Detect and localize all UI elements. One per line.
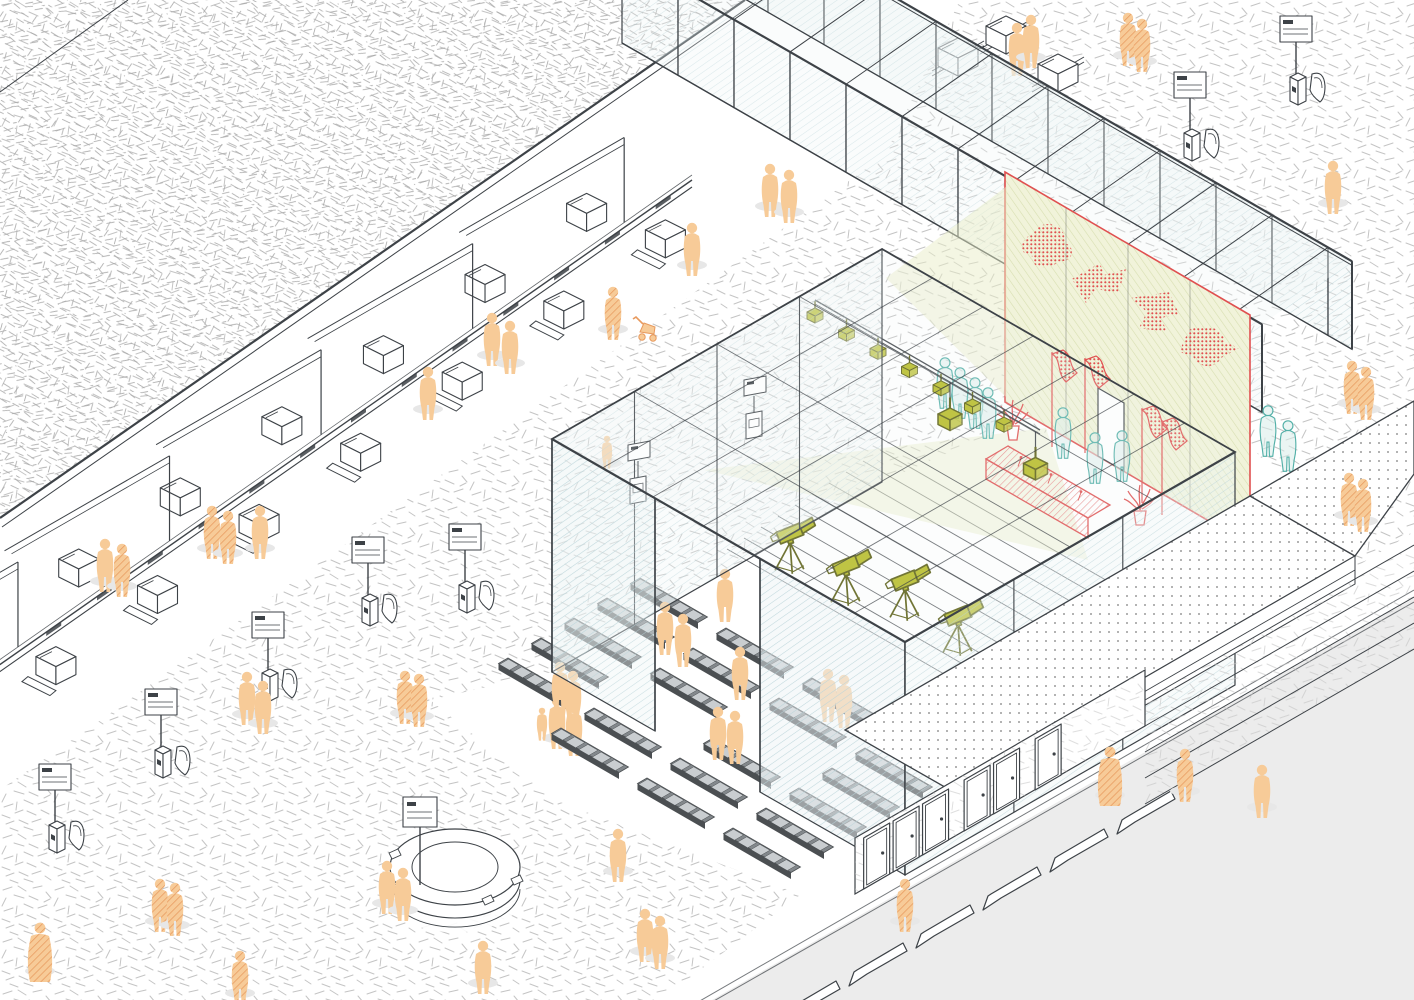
person-shadow: [225, 988, 255, 998]
person-shadow: [774, 207, 804, 217]
person-shadow: [598, 324, 628, 334]
person-shadow: [1127, 56, 1157, 66]
person-shadow: [1016, 52, 1046, 62]
person-shadow: [1247, 802, 1277, 812]
person-shadow: [1318, 198, 1348, 208]
axonometric-illustration: [0, 0, 1414, 1000]
person-shadow: [645, 953, 675, 963]
person-shadow: [1351, 404, 1381, 414]
desk-inner-edge: [412, 842, 498, 892]
person-shadow: [890, 916, 920, 926]
person-shadow: [245, 543, 275, 553]
person-shadow: [160, 920, 190, 930]
person-shadow: [413, 404, 443, 414]
person-shadow: [248, 718, 278, 728]
person-shadow: [677, 260, 707, 270]
person-shadow: [1170, 786, 1200, 796]
person-shadow: [1348, 516, 1378, 526]
person-shadow: [213, 548, 243, 558]
person-shadow: [495, 358, 525, 368]
person-shadow: [468, 978, 498, 988]
person-shadow: [388, 905, 418, 915]
person-shadow: [404, 711, 434, 721]
person-shadow: [107, 581, 137, 591]
axonometric-terminal-diagram: [0, 0, 1414, 1000]
person-shadow: [603, 866, 633, 876]
